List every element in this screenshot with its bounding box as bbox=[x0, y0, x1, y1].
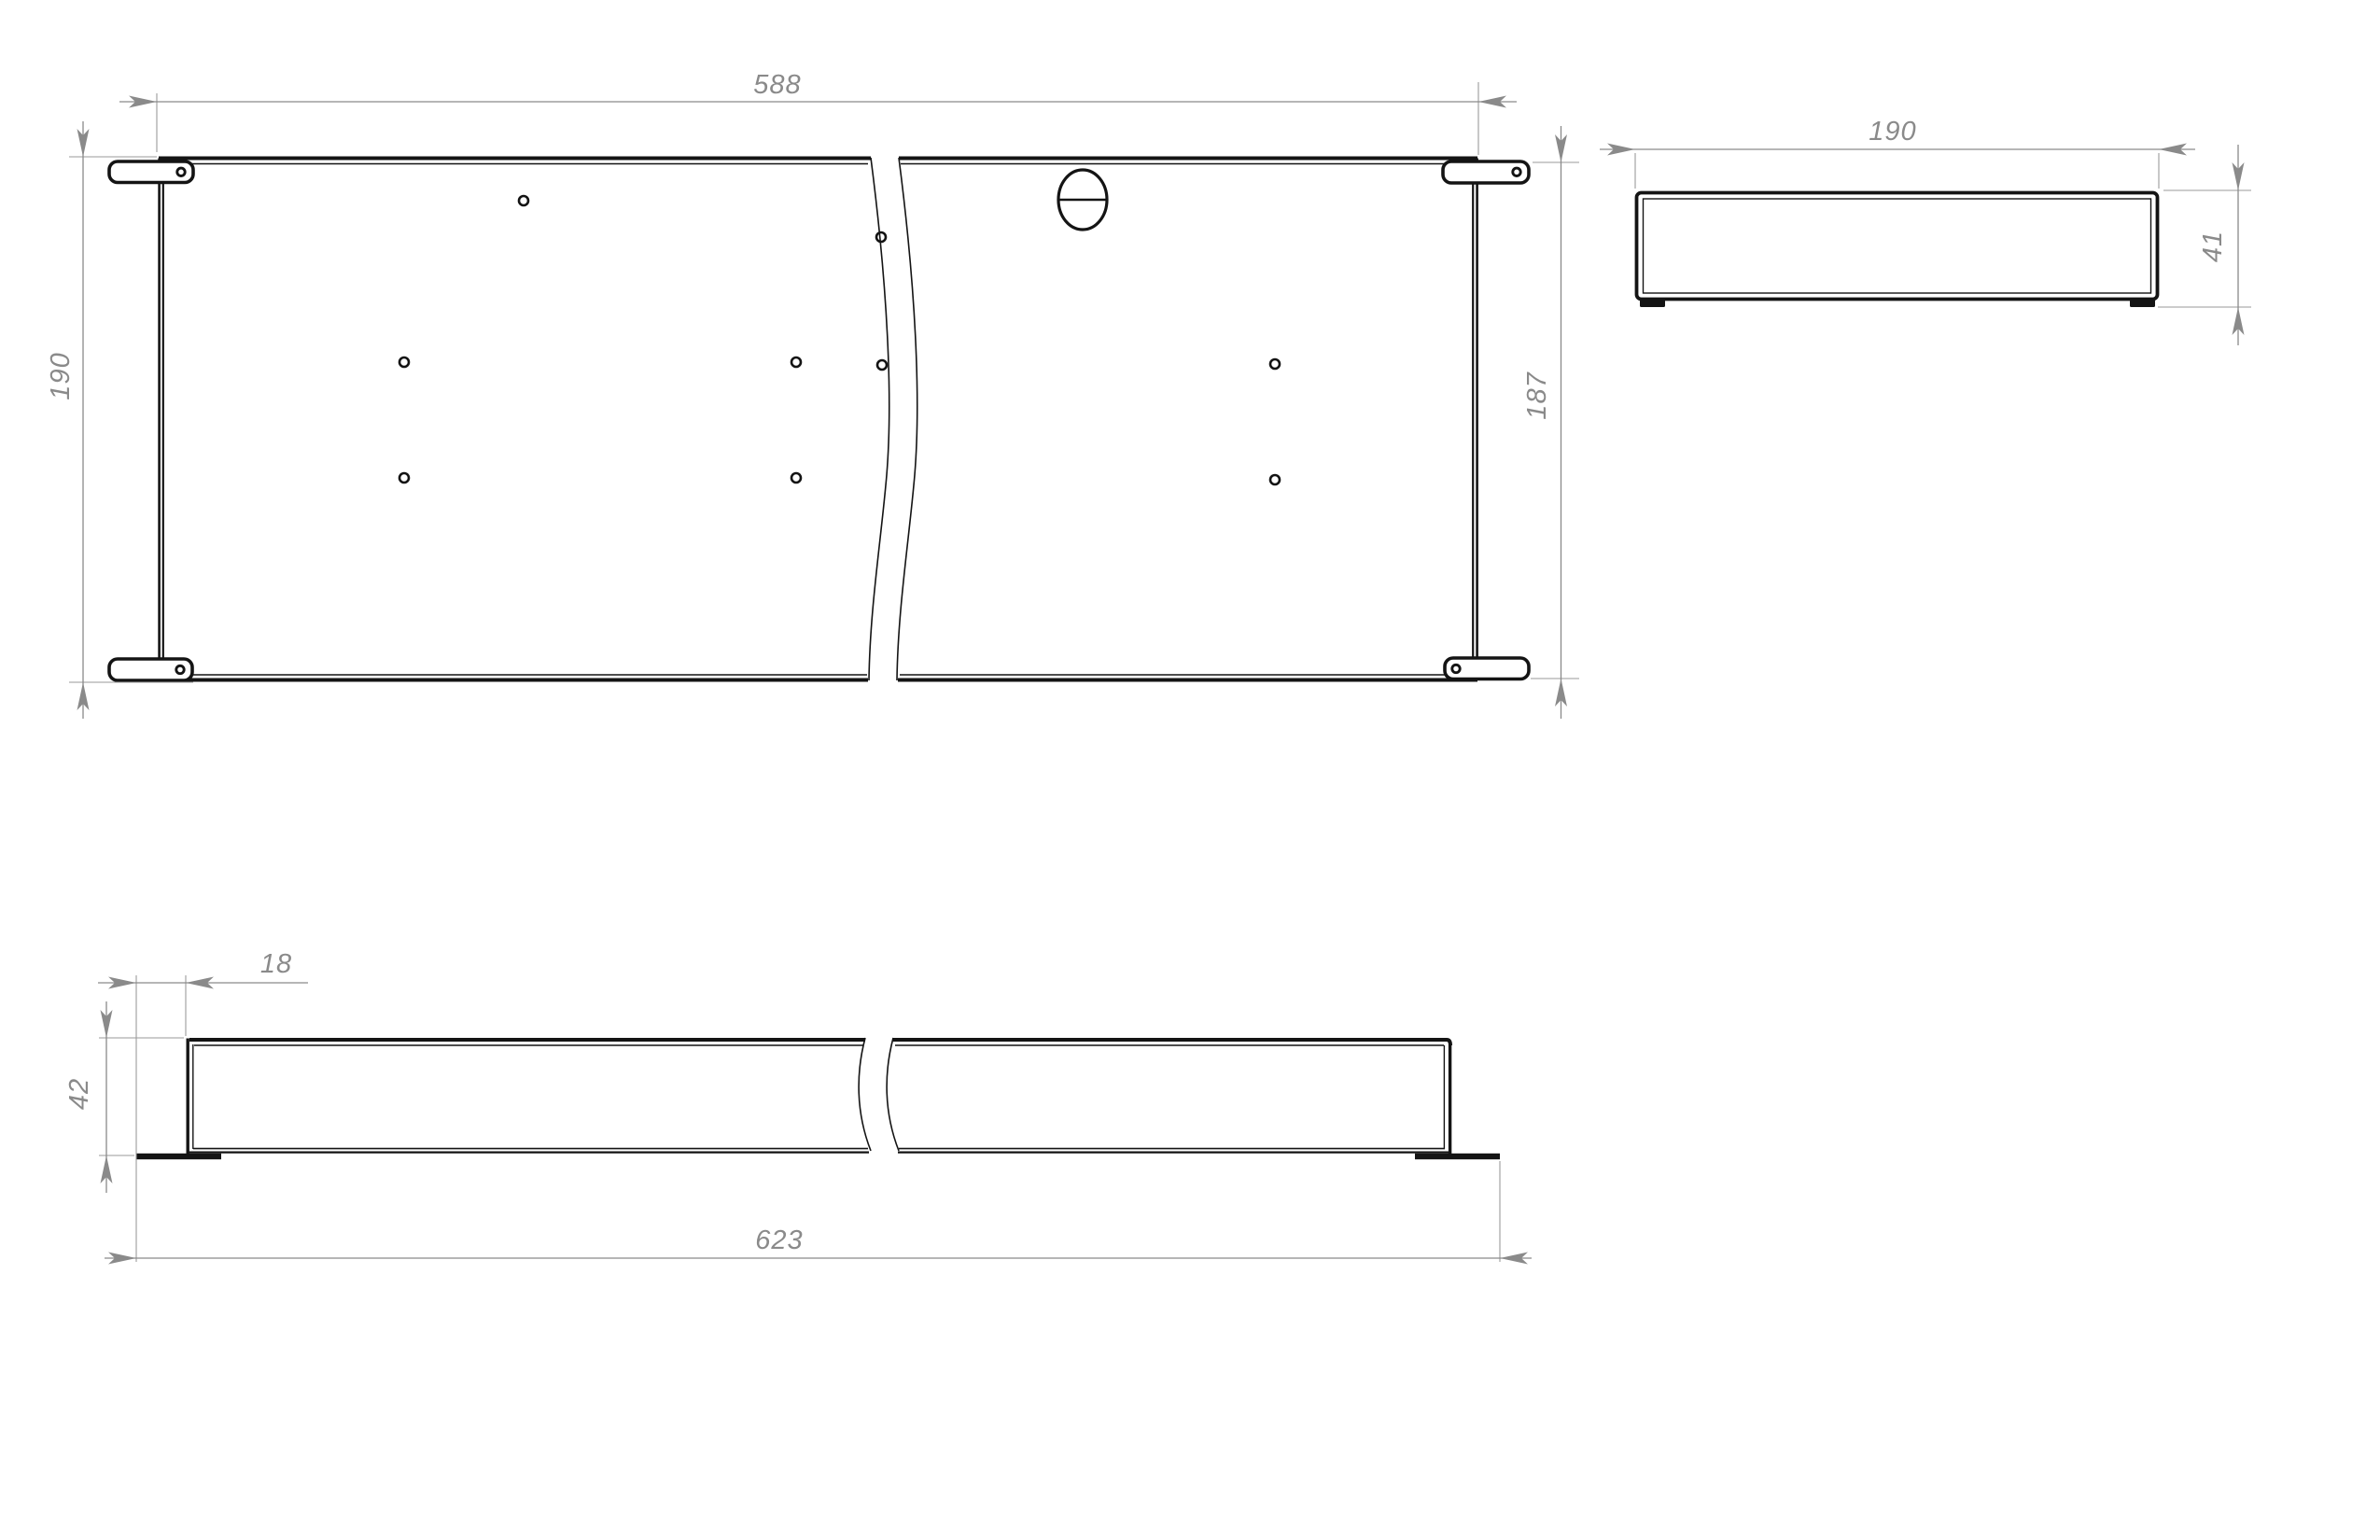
grommet-hole bbox=[1058, 170, 1107, 230]
break-line-right bbox=[897, 158, 917, 680]
dim-text-623: 623 bbox=[755, 1225, 803, 1255]
dim-text-18: 18 bbox=[260, 949, 292, 979]
mounting-tab-top-left bbox=[109, 161, 193, 183]
side-inner-wall bbox=[1644, 199, 2151, 293]
dim-text-42: 42 bbox=[64, 1078, 94, 1110]
tray-outline bbox=[159, 159, 1477, 681]
flange-right bbox=[1415, 1154, 1500, 1159]
dimension-187: 187 bbox=[1522, 126, 1579, 719]
mounting-tab-bottom-right bbox=[1445, 658, 1529, 679]
dim-text-190-side: 190 bbox=[1869, 117, 1916, 147]
side-view: 190 41 bbox=[1600, 117, 2251, 345]
dimension-41: 41 bbox=[2158, 145, 2251, 345]
dimension-190-left: 190 bbox=[46, 121, 193, 719]
drawing-sheet: 588 190 187 bbox=[0, 0, 2380, 1540]
top-view: 588 190 187 bbox=[46, 70, 1579, 719]
dim-text-588: 588 bbox=[753, 70, 801, 100]
break-line-front-left bbox=[859, 1038, 871, 1151]
front-view: 18 42 623 bbox=[64, 949, 1532, 1265]
dim-text-187: 187 bbox=[1522, 371, 1552, 419]
dimension-623: 623 bbox=[105, 1161, 1532, 1265]
break-line-front-right bbox=[887, 1038, 899, 1151]
flange-left bbox=[136, 1154, 221, 1159]
dimension-42: 42 bbox=[64, 1001, 184, 1193]
dimension-18: 18 bbox=[98, 949, 308, 1262]
mounting-tab-top-right bbox=[1443, 161, 1529, 183]
screw-holes bbox=[399, 196, 1280, 484]
dim-text-190-left: 190 bbox=[46, 352, 76, 399]
dim-text-41: 41 bbox=[2198, 231, 2228, 262]
dimension-190-side: 190 bbox=[1600, 117, 2195, 189]
front-outline bbox=[188, 1039, 1450, 1155]
mounting-tab-bottom-left bbox=[109, 659, 192, 680]
dimension-588: 588 bbox=[119, 70, 1517, 155]
technical-drawing: 588 190 187 bbox=[0, 0, 2380, 1540]
side-outline bbox=[1637, 193, 2158, 300]
